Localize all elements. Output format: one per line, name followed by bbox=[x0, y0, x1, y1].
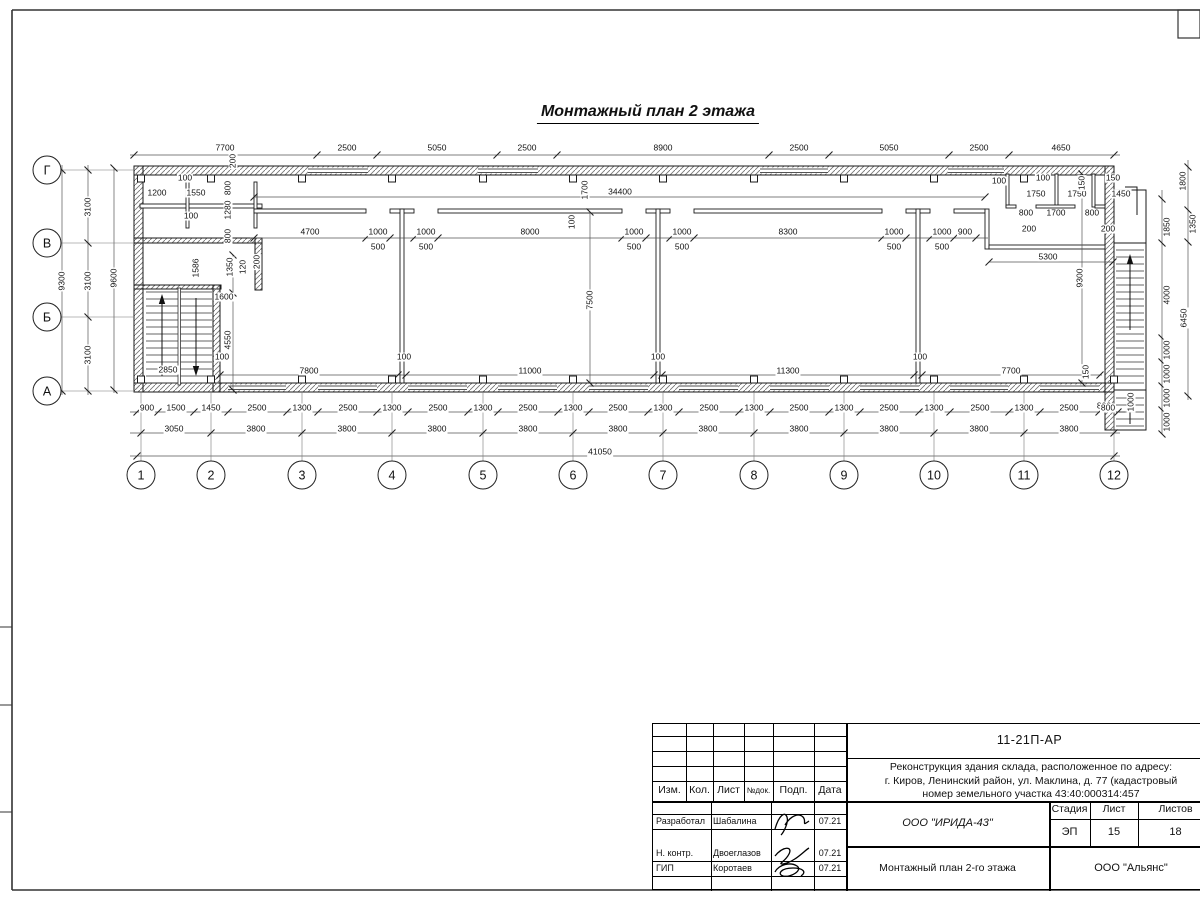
dim-label: 100 bbox=[214, 353, 230, 362]
tb-col-data: Дата bbox=[814, 781, 846, 801]
axis-circle-col-1: 1 bbox=[127, 461, 156, 490]
axis-circle-col-6: 6 bbox=[559, 461, 588, 490]
tb-name-2: Двоеглазов bbox=[711, 846, 771, 861]
dim-label: 1000 bbox=[1163, 364, 1172, 385]
dim-label: 800 bbox=[224, 228, 233, 244]
dim-label: 500 bbox=[934, 243, 950, 252]
dim-label: 500 bbox=[418, 243, 434, 252]
tb-name-1: Шабалина bbox=[711, 814, 771, 829]
dim-label: 1450 bbox=[201, 404, 222, 413]
dim-label: 3100 bbox=[84, 271, 93, 292]
dim-label: 1000 bbox=[416, 228, 437, 237]
dimension-ticks bbox=[59, 152, 1192, 460]
dim-label: 2500 bbox=[517, 144, 538, 153]
dim-label: 1350 bbox=[226, 257, 235, 278]
dim-label: 1300 bbox=[563, 404, 584, 413]
dim-label: 5050 bbox=[427, 144, 448, 153]
dim-label: 800 bbox=[1100, 404, 1116, 413]
tb-col-kol: Кол. bbox=[686, 781, 713, 801]
dim-label: 3800 bbox=[969, 425, 990, 434]
dim-label: 4000 bbox=[1163, 285, 1172, 306]
dim-label: 3800 bbox=[337, 425, 358, 434]
dim-label: 900 bbox=[957, 228, 973, 237]
dim-label: 3100 bbox=[84, 345, 93, 366]
corner-box bbox=[1178, 10, 1200, 38]
dim-label: 100 bbox=[396, 353, 412, 362]
tb-list-value: 15 bbox=[1090, 819, 1138, 846]
dim-label: 1000 bbox=[368, 228, 389, 237]
dim-label: 100 bbox=[912, 353, 928, 362]
dim-label: 3800 bbox=[427, 425, 448, 434]
dim-label: 3800 bbox=[1059, 425, 1080, 434]
axis-circle-row-А: А bbox=[33, 377, 62, 406]
tb-col-podp: Подп. bbox=[773, 781, 814, 801]
tb-company: ООО "Альянс" bbox=[1049, 846, 1200, 891]
dim-label: 1300 bbox=[744, 404, 765, 413]
tb-project-line2: г. Киров, Ленинский район, ул. Маклина, … bbox=[849, 775, 1200, 789]
dim-label: 6450 bbox=[1180, 308, 1189, 329]
dim-label: 1800 bbox=[1179, 171, 1188, 192]
drawing-title: Монтажный план 2 этажа bbox=[537, 103, 759, 124]
dim-label: 1700 bbox=[581, 180, 590, 201]
axis-circle-col-5: 5 bbox=[469, 461, 498, 490]
dim-label: 5050 bbox=[879, 144, 900, 153]
dim-label: 1500 bbox=[166, 404, 187, 413]
dim-label: 1000 bbox=[1163, 388, 1172, 409]
axis-circle-col-9: 9 bbox=[830, 461, 859, 490]
dim-label: 8000 bbox=[520, 228, 541, 237]
dim-label: 3100 bbox=[84, 197, 93, 218]
tb-role-1: Разработал bbox=[653, 814, 711, 829]
axis-circle-col-8: 8 bbox=[740, 461, 769, 490]
dim-label: 5300 bbox=[1038, 253, 1059, 262]
dim-label: 8900 bbox=[653, 144, 674, 153]
dim-label: 500 bbox=[674, 243, 690, 252]
tb-design-org: ООО "ИРИДА-43" bbox=[846, 801, 1049, 846]
dim-label: 1300 bbox=[924, 404, 945, 413]
tb-col-list: Лист bbox=[713, 781, 744, 801]
dim-label: 1350 bbox=[1189, 214, 1198, 235]
dim-label: 1000 bbox=[1163, 412, 1172, 433]
dim-label: 8300 bbox=[778, 228, 799, 237]
dim-label: 800 bbox=[1018, 209, 1034, 218]
signature-2 bbox=[769, 842, 815, 882]
dim-label: 500 bbox=[886, 243, 902, 252]
axis-circle-col-10: 10 bbox=[920, 461, 949, 490]
dim-label: 1280 bbox=[224, 200, 233, 221]
tb-project-line3: номер земельного участка 43:40:000314:45… bbox=[849, 788, 1200, 802]
dim-label: 7500 bbox=[586, 290, 595, 311]
dim-label: 1000 bbox=[932, 228, 953, 237]
dim-label: 2850 bbox=[158, 366, 179, 375]
dim-label: 1000 bbox=[672, 228, 693, 237]
dim-label: 2500 bbox=[428, 404, 449, 413]
tb-project-description: Реконструкция здания склада, расположенн… bbox=[849, 758, 1200, 801]
dim-label: 4700 bbox=[300, 228, 321, 237]
axis-circle-col-2: 2 bbox=[197, 461, 226, 490]
dim-label: 1300 bbox=[382, 404, 403, 413]
dim-label: 1850 bbox=[1163, 217, 1172, 238]
dim-label: 120 bbox=[239, 259, 248, 275]
dim-label: 1600 bbox=[214, 293, 235, 302]
tb-line bbox=[653, 876, 846, 877]
dim-label: 2500 bbox=[247, 404, 268, 413]
axis-circle-col-12: 12 bbox=[1100, 461, 1129, 490]
dim-label: 11300 bbox=[775, 367, 800, 376]
axis-circle-row-Г: Г bbox=[33, 156, 62, 185]
dim-label: 9300 bbox=[1076, 268, 1085, 289]
axis-circle-col-3: 3 bbox=[288, 461, 317, 490]
tb-project-line1: Реконструкция здания склада, расположенн… bbox=[849, 761, 1200, 775]
stairs bbox=[146, 250, 1144, 426]
dim-label: 2500 bbox=[879, 404, 900, 413]
dim-label: 9300 bbox=[58, 271, 67, 292]
dim-label: 1450 bbox=[1111, 190, 1132, 199]
dim-label: 4650 bbox=[1051, 144, 1072, 153]
dim-label: 3800 bbox=[789, 425, 810, 434]
dim-label: 2500 bbox=[699, 404, 720, 413]
tb-stage-value: ЭП bbox=[1049, 819, 1090, 846]
axis-circle-row-Б: Б bbox=[33, 303, 62, 332]
dim-label: 1200 bbox=[147, 189, 168, 198]
dim-label: 100 bbox=[991, 177, 1007, 186]
dim-label: 100 bbox=[177, 174, 193, 183]
dim-label: 100 bbox=[650, 353, 666, 362]
tb-date-3: 07.21 bbox=[814, 861, 846, 876]
dim-label: 3800 bbox=[879, 425, 900, 434]
signature-1 bbox=[771, 807, 814, 837]
dim-label: 2500 bbox=[608, 404, 629, 413]
dim-label: 2500 bbox=[518, 404, 539, 413]
dim-label: 3050 bbox=[164, 425, 185, 434]
dim-label: 100 bbox=[183, 212, 199, 221]
dim-label: 7700 bbox=[1001, 367, 1022, 376]
dim-label: 1550 bbox=[186, 189, 207, 198]
dim-label: 2500 bbox=[337, 144, 358, 153]
dim-label: 1000 bbox=[1163, 340, 1172, 361]
tb-line bbox=[653, 766, 846, 767]
dim-label: 2500 bbox=[969, 144, 990, 153]
dim-label: 7800 bbox=[299, 367, 320, 376]
dim-label: 1300 bbox=[473, 404, 494, 413]
dim-label: 2500 bbox=[338, 404, 359, 413]
dim-label: 100 bbox=[1035, 174, 1051, 183]
dim-label: 1000 bbox=[1127, 392, 1136, 413]
dim-label: 4550 bbox=[224, 330, 233, 351]
dim-label: 3800 bbox=[608, 425, 629, 434]
tb-role-3: ГИП bbox=[653, 861, 711, 876]
tb-col-izm: Изм. bbox=[653, 781, 686, 801]
dim-label: 1300 bbox=[653, 404, 674, 413]
dim-label: 500 bbox=[626, 243, 642, 252]
dim-label: 2500 bbox=[970, 404, 991, 413]
dim-label: 200 bbox=[253, 254, 262, 270]
sheet: { "page": { "title_label": "Монтажный пл… bbox=[0, 0, 1200, 900]
dim-label: 11000 bbox=[517, 367, 542, 376]
dim-label: 900 bbox=[139, 404, 155, 413]
dim-label: 1300 bbox=[292, 404, 313, 413]
axis-circle-row-В: В bbox=[33, 229, 62, 258]
tb-role-2: Н. контр. bbox=[653, 846, 711, 861]
dim-label: 9600 bbox=[110, 268, 119, 289]
axis-circle-col-11: 11 bbox=[1010, 461, 1039, 490]
dim-label: 3800 bbox=[246, 425, 267, 434]
dim-label: 800 bbox=[224, 180, 233, 196]
dim-label: 200 bbox=[1021, 225, 1037, 234]
tb-sheet-title: Монтажный план 2-го этажа bbox=[846, 846, 1049, 891]
dim-label: 3800 bbox=[698, 425, 719, 434]
dim-label: 1700 bbox=[1046, 209, 1067, 218]
dim-label: 2500 bbox=[1059, 404, 1080, 413]
tb-doc-number: 11-21П-АР bbox=[846, 724, 1200, 758]
dim-label: 1750 bbox=[1026, 190, 1047, 199]
dim-label: 500 bbox=[370, 243, 386, 252]
dim-label: 200 bbox=[1100, 225, 1116, 234]
walls bbox=[134, 166, 1114, 430]
tb-name-3: Коротаев bbox=[711, 861, 771, 876]
dim-label: 34400 bbox=[607, 188, 633, 197]
axis-circle-col-7: 7 bbox=[649, 461, 678, 490]
dim-label: 1000 bbox=[624, 228, 645, 237]
tb-lists-label: Листов bbox=[1138, 801, 1200, 819]
dim-label: 2500 bbox=[789, 404, 810, 413]
dim-label: 100 bbox=[568, 214, 577, 230]
dim-label: 800 bbox=[1084, 209, 1100, 218]
tb-line bbox=[653, 751, 846, 752]
dim-label: 7700 bbox=[215, 144, 236, 153]
tb-stage-label: Стадия bbox=[1049, 801, 1090, 819]
dim-label: 1300 bbox=[1014, 404, 1035, 413]
tb-line bbox=[653, 829, 846, 830]
dim-label: 1300 bbox=[834, 404, 855, 413]
dim-label: 150 bbox=[1082, 364, 1091, 380]
dim-label: 2500 bbox=[789, 144, 810, 153]
dim-label: 3800 bbox=[518, 425, 539, 434]
axis-circle-col-4: 4 bbox=[378, 461, 407, 490]
dim-label: 150 bbox=[1078, 175, 1087, 191]
dim-label: 41050 bbox=[587, 448, 613, 457]
title-block: Изм. Кол. Лист №док. Подп. Дата Разработ… bbox=[652, 723, 1200, 890]
tb-col-dok: №док. bbox=[744, 781, 773, 801]
tb-date-1: 07.21 bbox=[814, 814, 846, 829]
tb-line bbox=[653, 736, 846, 737]
tb-list-label: Лист bbox=[1090, 801, 1138, 819]
dim-label: 150 bbox=[1105, 174, 1121, 183]
tb-lists-value: 18 bbox=[1138, 819, 1200, 846]
dim-label: 1000 bbox=[884, 228, 905, 237]
tb-date-2: 07.21 bbox=[814, 846, 846, 861]
dim-label: 200 bbox=[229, 153, 238, 169]
dim-label: 1586 bbox=[192, 258, 201, 279]
